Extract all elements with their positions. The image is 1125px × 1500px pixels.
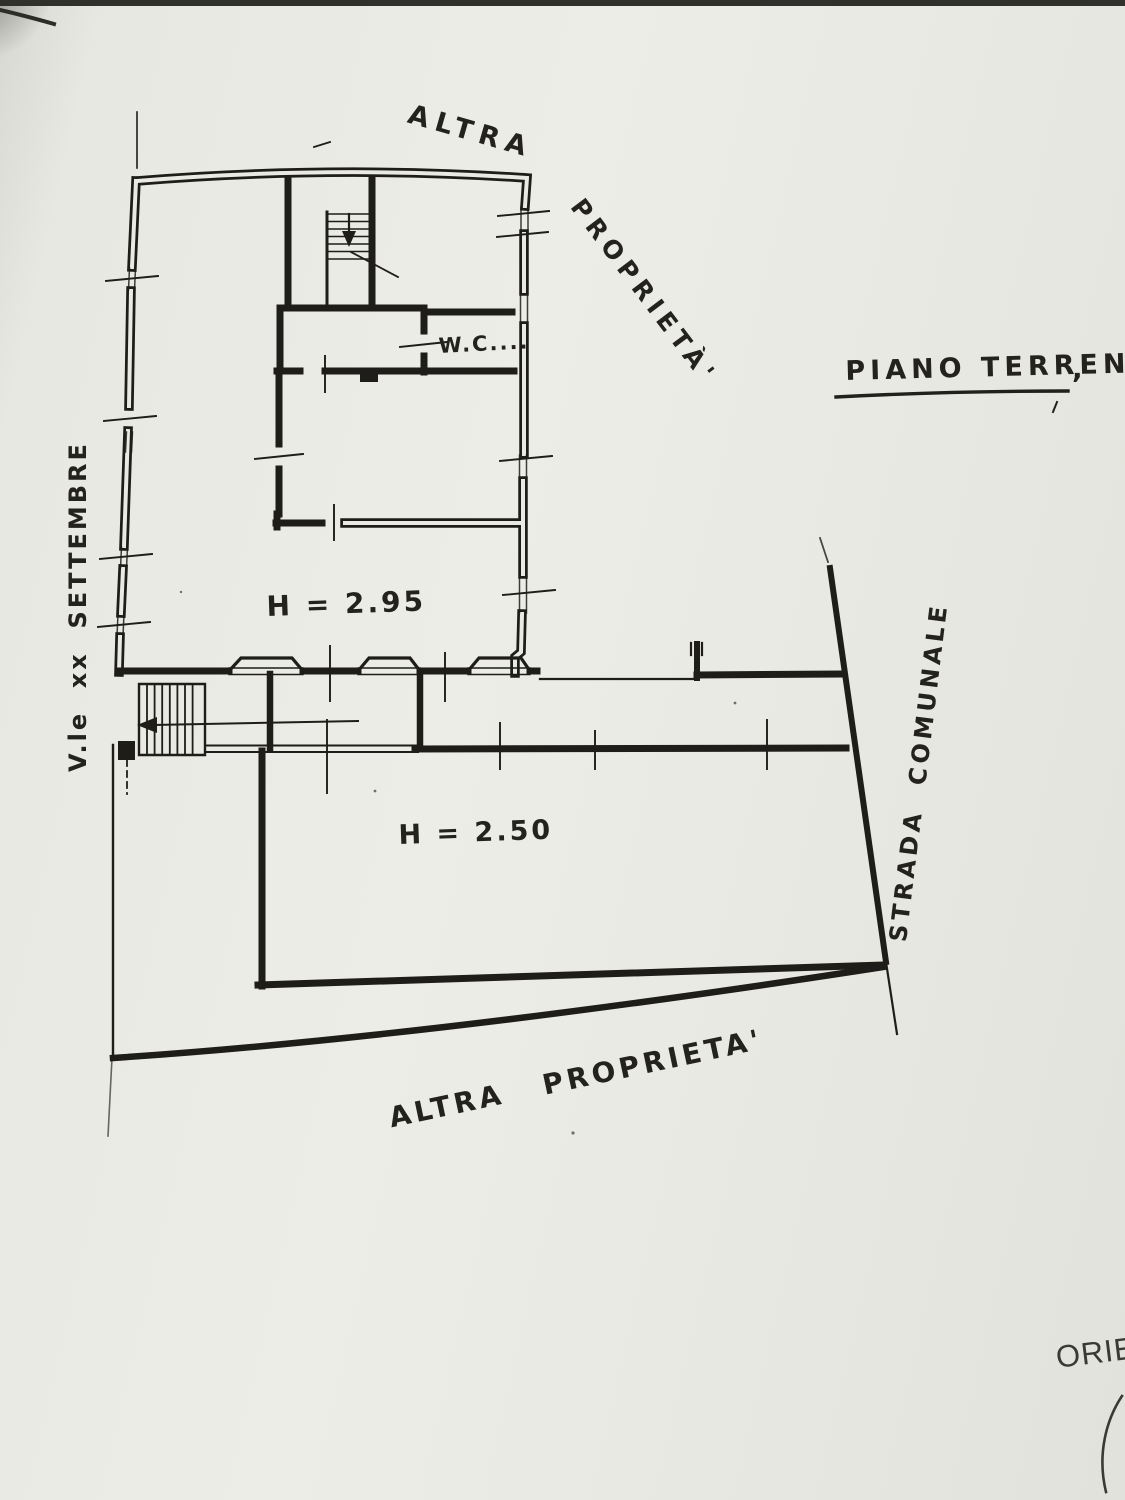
- boundary-lines: [108, 112, 897, 1136]
- title-underline: [836, 391, 1068, 412]
- window-sill-trapezoids: [229, 658, 530, 671]
- south-wall: [119, 658, 537, 675]
- porch-walls: [207, 643, 846, 752]
- entrance-stair: [118, 684, 358, 794]
- annex-room-walls: [258, 751, 884, 986]
- floorplan-drawing: [0, 0, 1125, 1500]
- door-pivot-block: [118, 741, 135, 760]
- scan-corner-curl: [0, 10, 54, 24]
- label-height-250: H = 2.50: [398, 815, 554, 851]
- label-street-vle-xx-settembre: V.le xx SETTEMBRE: [64, 441, 92, 772]
- label-wc: W.C....: [438, 329, 530, 358]
- window-openings: [117, 207, 528, 636]
- door-threshold: [360, 372, 378, 382]
- scanned-floorplan-page: ALTRA PROPRIETÀ' PIANO TERRENO , W.C....…: [0, 0, 1125, 1500]
- compass-curve-fragment: [1102, 1396, 1122, 1492]
- label-height-295: H = 2.95: [266, 584, 427, 623]
- strada-comunale-line: [830, 568, 886, 962]
- plan-title-comma: ,: [1072, 352, 1083, 385]
- internal-stair: [329, 214, 398, 277]
